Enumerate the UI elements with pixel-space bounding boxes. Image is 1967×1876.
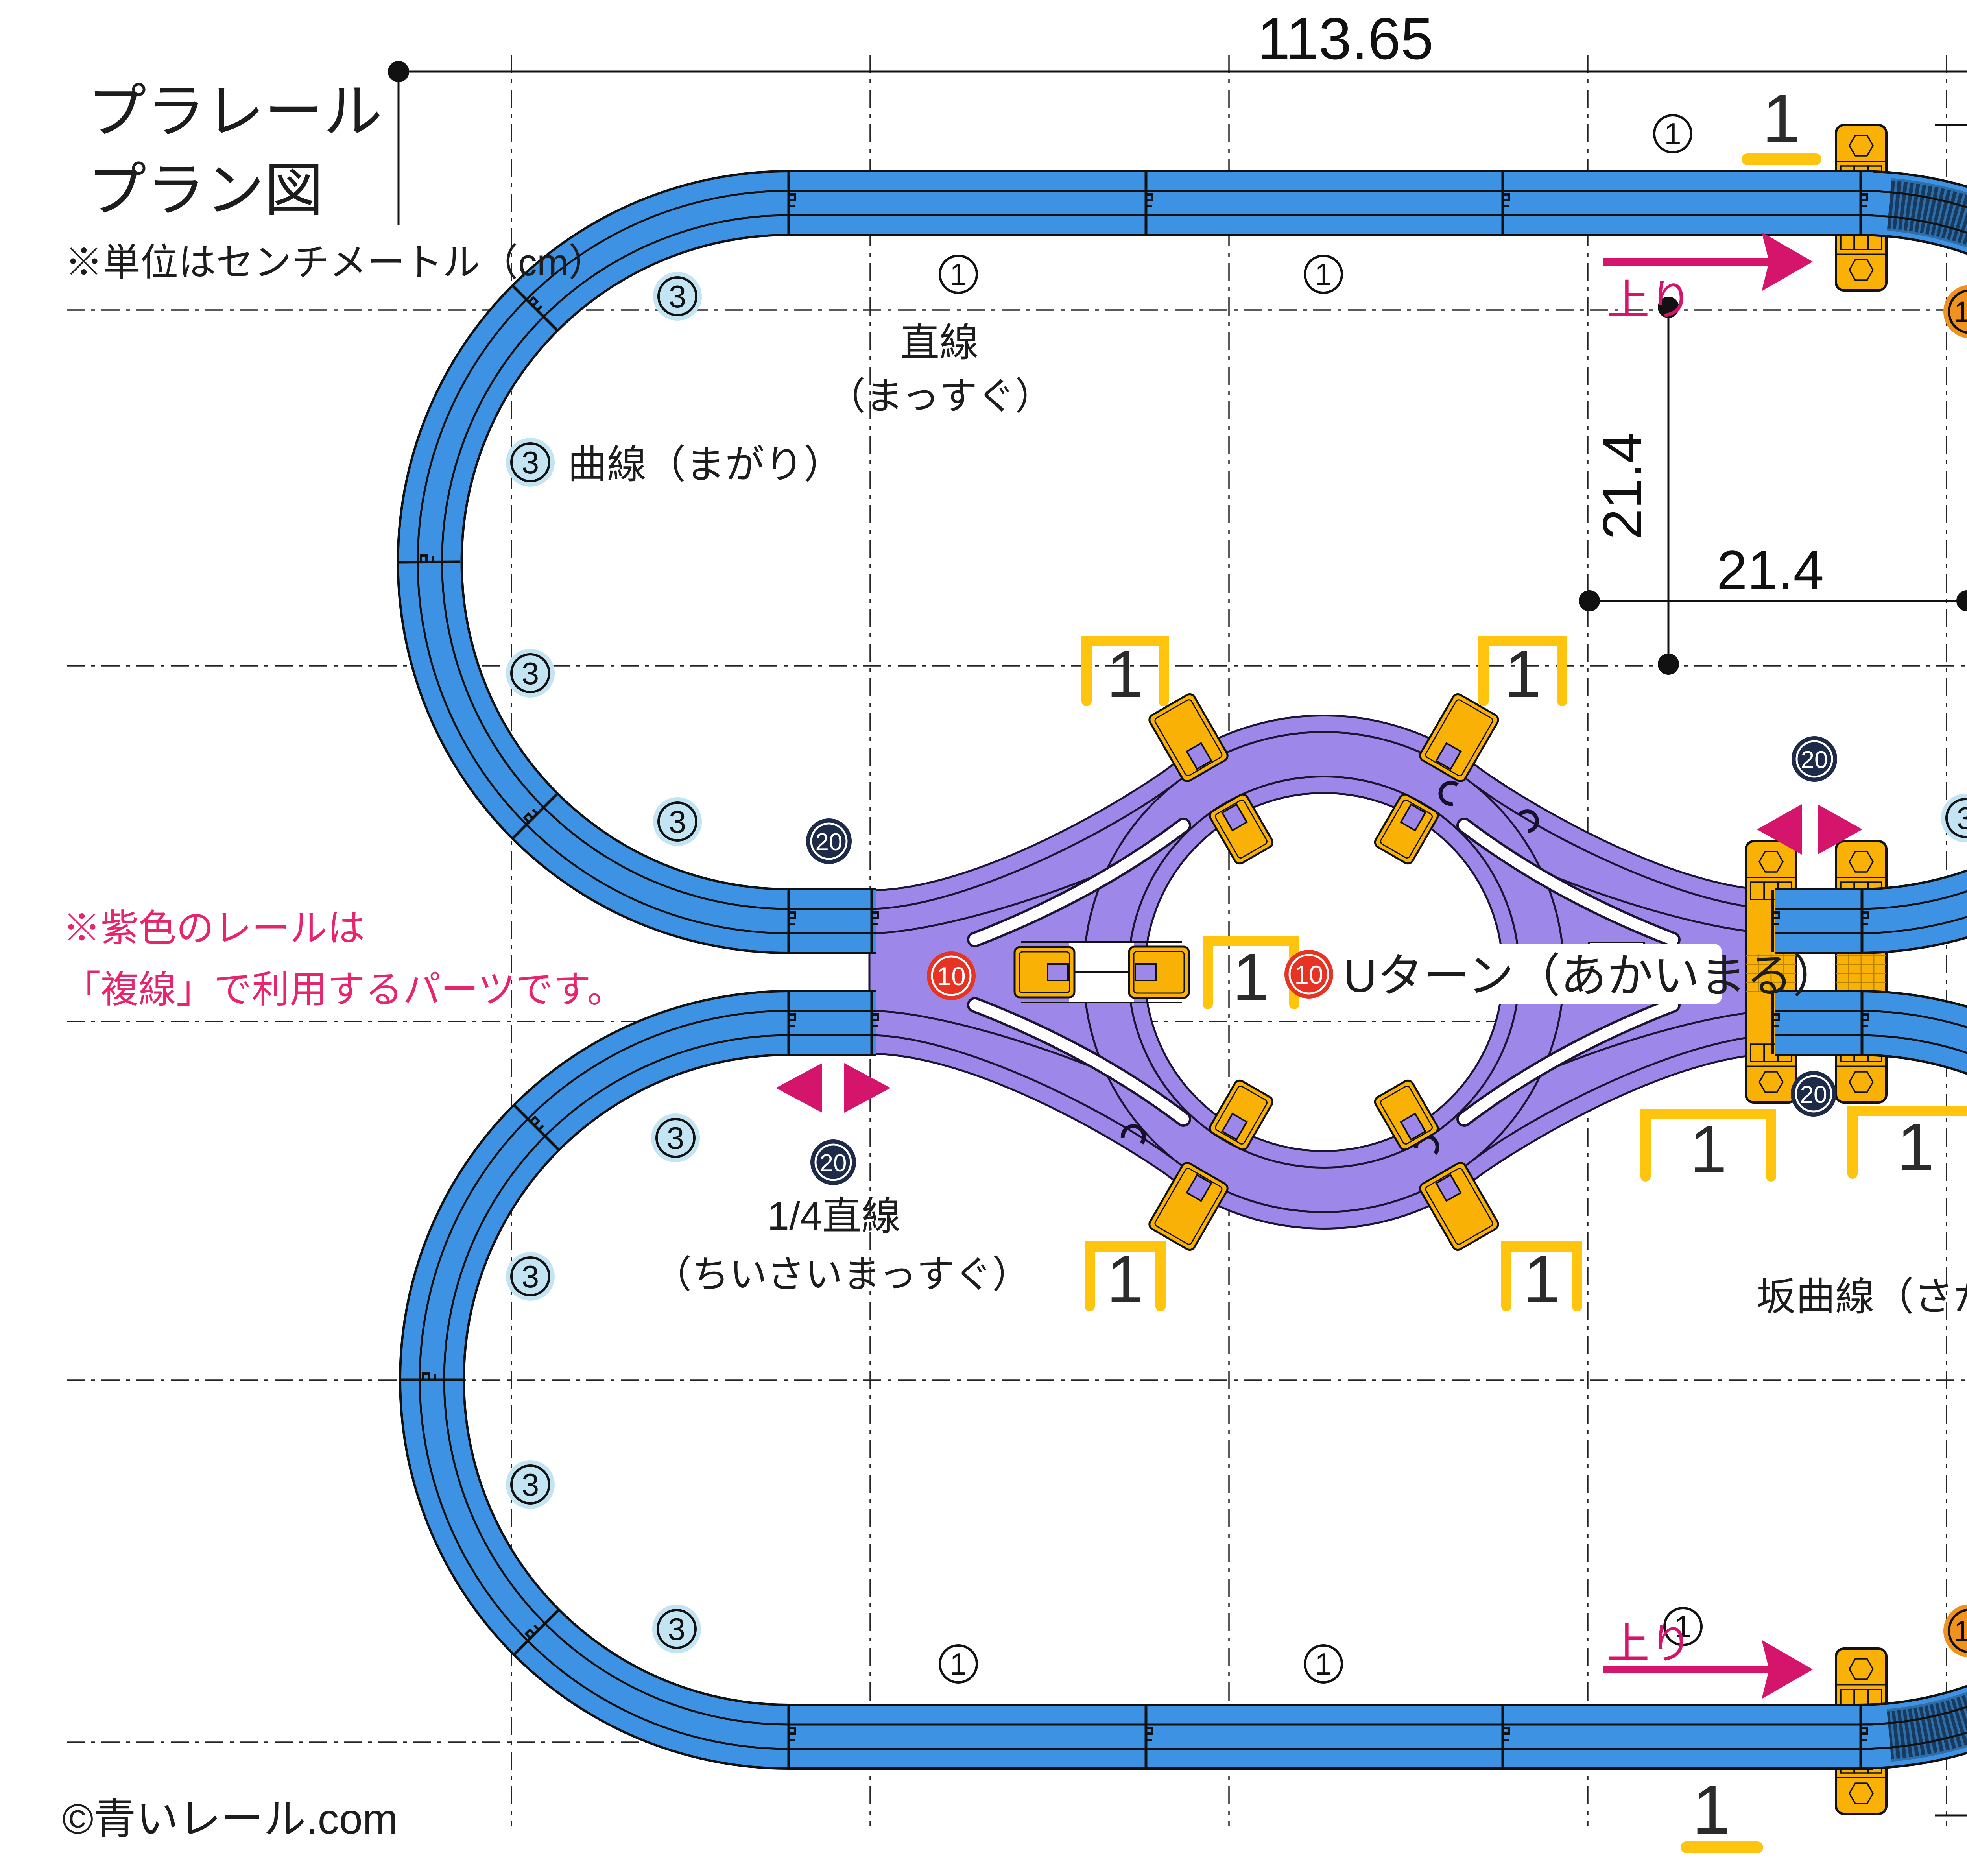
svg-text:3: 3	[522, 1259, 539, 1294]
svg-text:1: 1	[1315, 1647, 1332, 1681]
svg-text:©青いレール.com: ©青いレール.com	[62, 1795, 398, 1843]
svg-text:プラン図: プラン図	[87, 157, 323, 223]
svg-text:1: 1	[1233, 940, 1270, 1015]
svg-text:1: 1	[950, 257, 967, 292]
svg-text:1: 1	[1523, 1242, 1561, 1317]
svg-text:1: 1	[1107, 637, 1144, 712]
svg-text:1: 1	[1504, 637, 1542, 712]
svg-text:3: 3	[522, 1467, 539, 1502]
svg-text:20: 20	[1800, 1081, 1827, 1108]
svg-text:3: 3	[668, 1612, 686, 1647]
svg-text:1: 1	[950, 1647, 967, 1681]
svg-text:上り: 上り	[1607, 276, 1692, 324]
svg-text:21.4: 21.4	[1591, 432, 1653, 539]
svg-text:「複線」で利用するパーツです。: 「複線」で利用するパーツです。	[63, 969, 625, 1011]
svg-text:20: 20	[816, 829, 843, 856]
svg-text:3: 3	[522, 656, 539, 691]
svg-text:3: 3	[669, 279, 686, 314]
svg-text:1: 1	[1690, 1112, 1727, 1187]
svg-text:3: 3	[667, 1121, 685, 1156]
svg-text:1: 1	[1692, 1772, 1730, 1848]
svg-text:曲線（まがり）: 曲線（まがり）	[568, 443, 843, 487]
svg-text:1: 1	[1107, 1242, 1144, 1317]
svg-text:10: 10	[937, 962, 965, 991]
svg-text:1: 1	[1664, 116, 1681, 151]
svg-text:（まっすぐ）: （まっすぐ）	[828, 375, 1053, 417]
svg-text:1: 1	[1897, 1110, 1934, 1184]
svg-text:プラレール: プラレール	[87, 78, 382, 144]
svg-text:21.4: 21.4	[1717, 539, 1824, 601]
svg-text:直線: 直線	[900, 321, 979, 365]
svg-text:（ちいさいまっすぐ）: （ちいさいまっすぐ）	[654, 1254, 1030, 1296]
svg-text:※紫色のレールは: ※紫色のレールは	[63, 907, 365, 949]
svg-text:3: 3	[522, 445, 539, 480]
svg-text:20: 20	[820, 1150, 847, 1177]
svg-text:20: 20	[1801, 746, 1828, 774]
svg-text:上り: 上り	[1607, 1620, 1692, 1667]
svg-text:1/4直線: 1/4直線	[767, 1194, 900, 1238]
svg-text:坂曲線（さかまがる）: 坂曲線（さかまがる）	[1757, 1275, 1967, 1319]
svg-text:10: 10	[1294, 960, 1323, 989]
svg-text:Uターン（あかいまる）: Uターン（あかいまる）	[1343, 950, 1839, 1002]
svg-text:18: 18	[1954, 295, 1967, 328]
svg-text:※単位はセンチメートル（cm）: ※単位はセンチメートル（cm）	[65, 242, 606, 284]
svg-text:18: 18	[1954, 1615, 1967, 1647]
svg-text:1: 1	[1762, 81, 1800, 157]
svg-text:1: 1	[1315, 257, 1332, 292]
svg-text:3: 3	[669, 804, 686, 839]
svg-text:113.65: 113.65	[1257, 6, 1434, 72]
svg-text:3: 3	[1957, 801, 1967, 836]
